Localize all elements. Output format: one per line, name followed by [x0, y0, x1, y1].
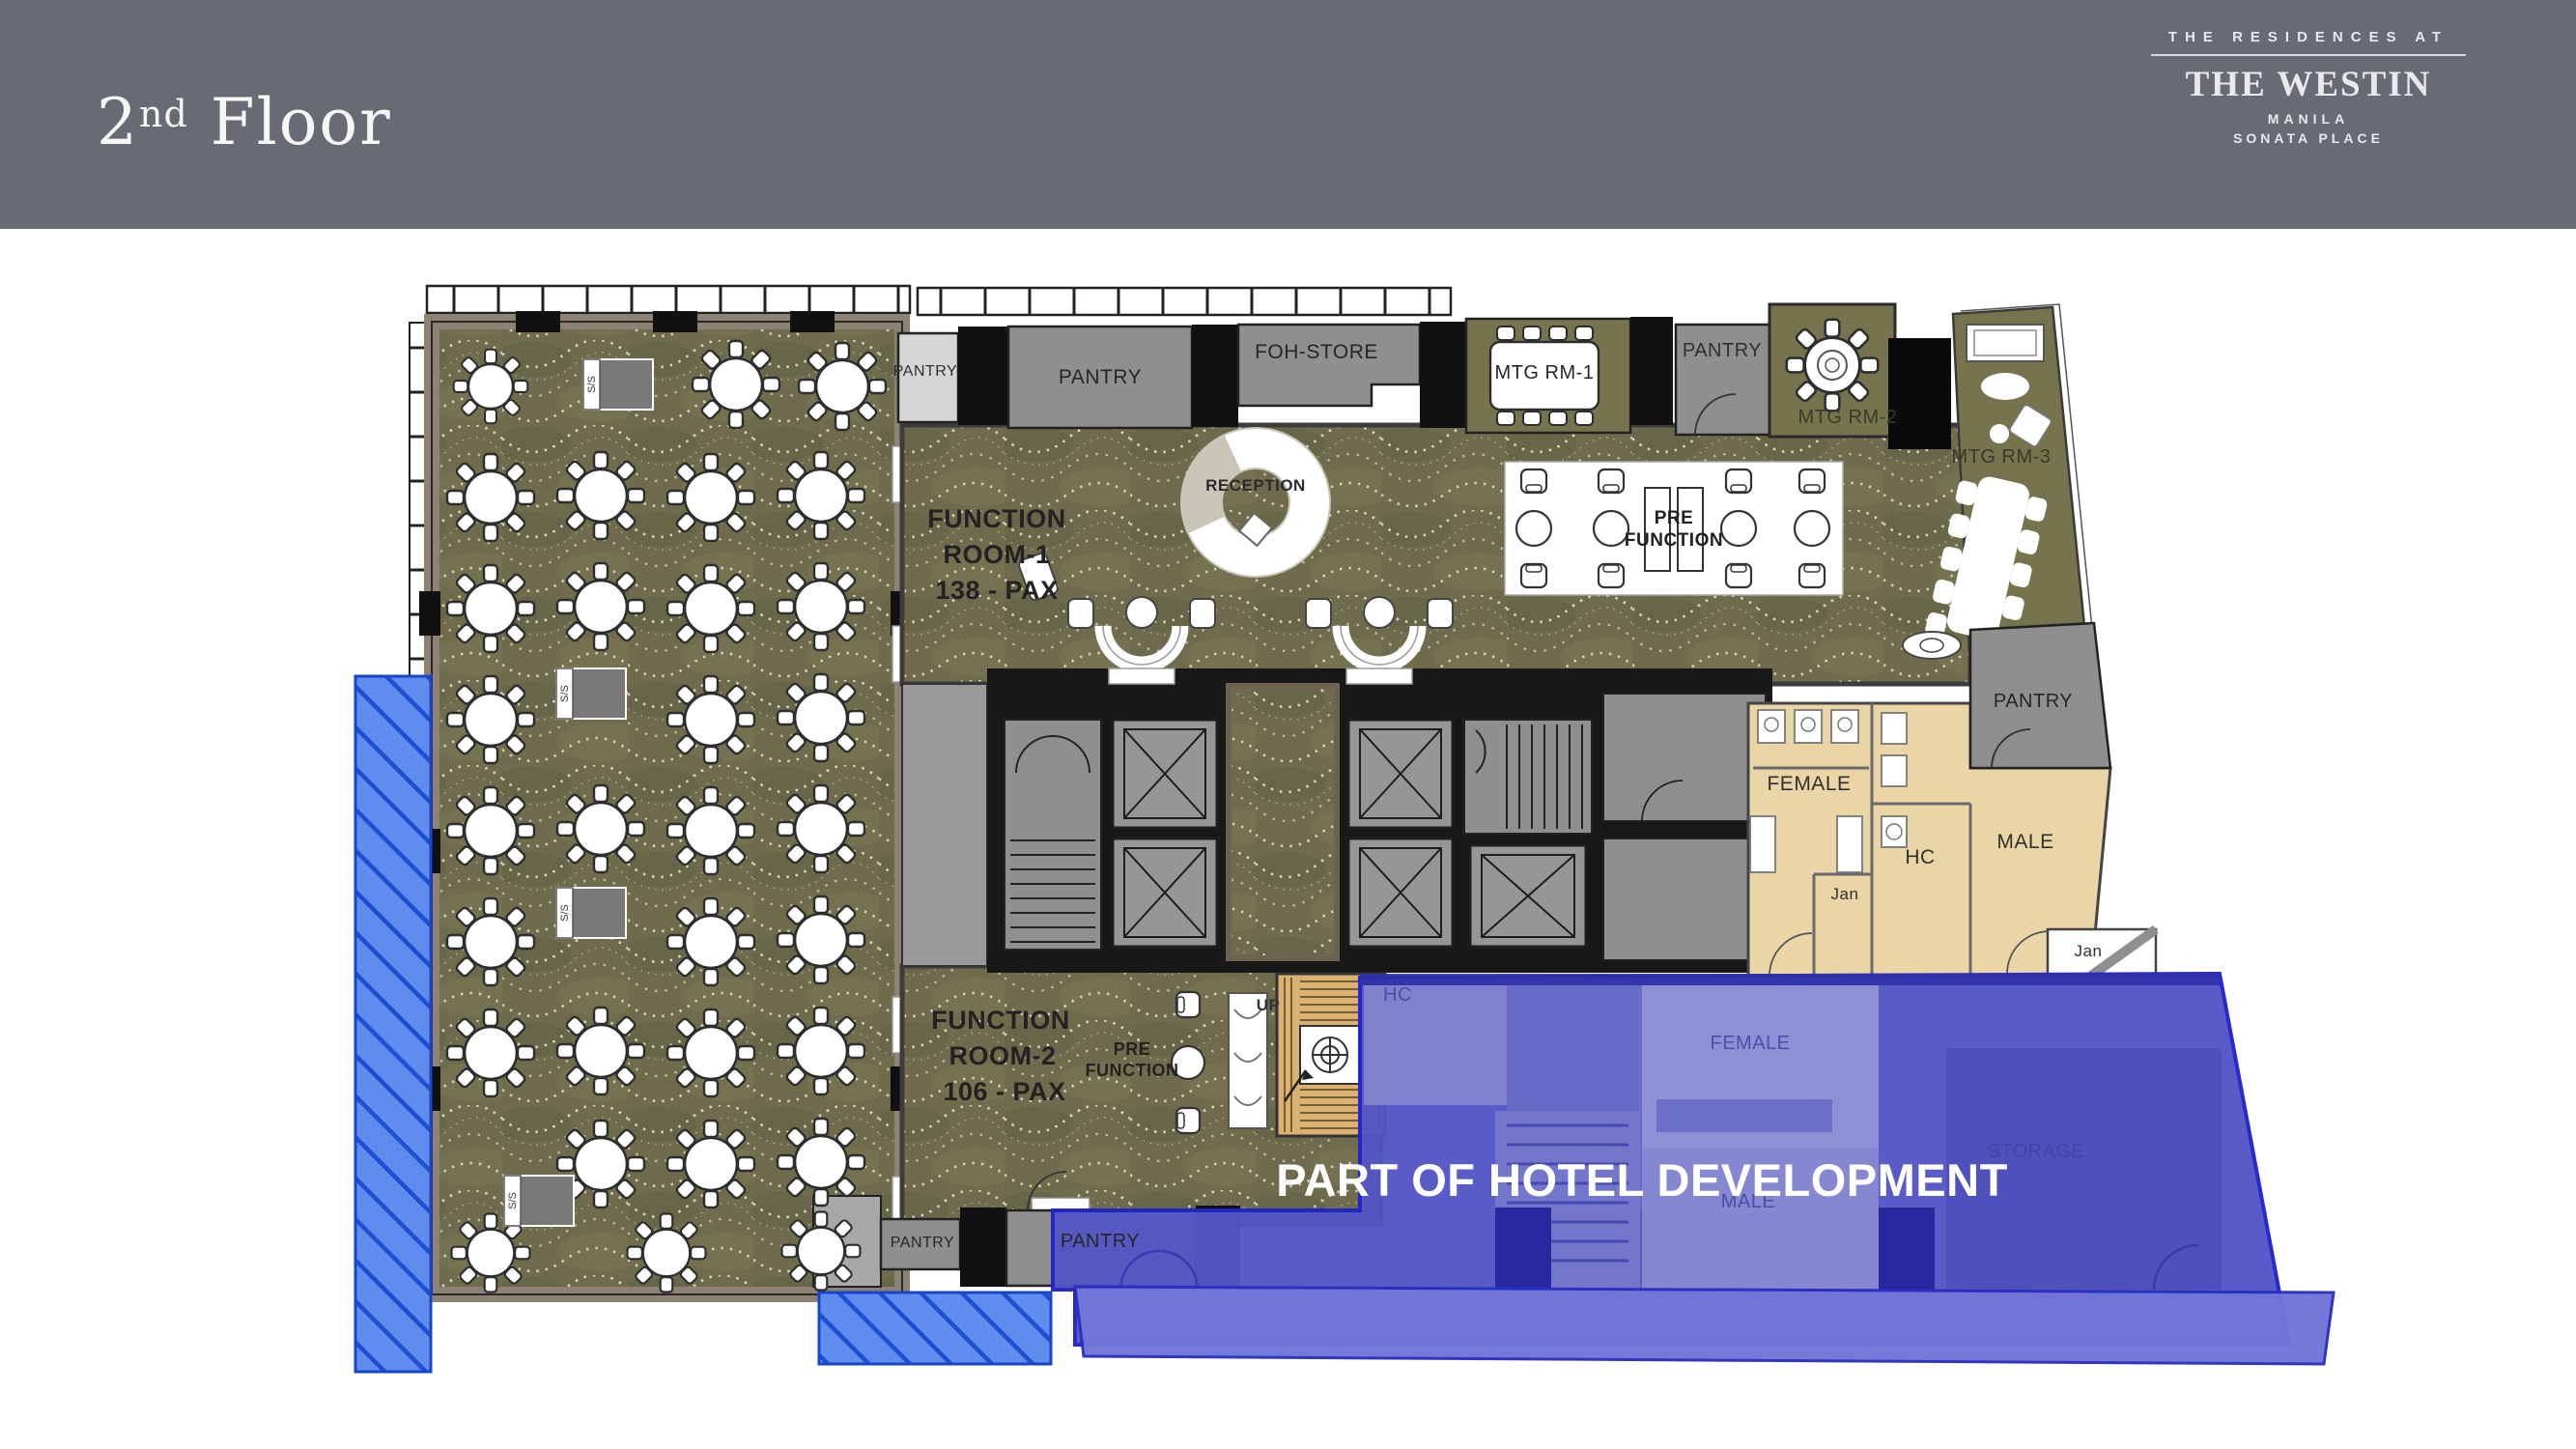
floor-word: Floor: [188, 85, 392, 159]
plan-label-pantry-top-small: PANTRY: [893, 363, 957, 380]
banquet-table: [667, 454, 754, 541]
elevator: [1113, 838, 1217, 947]
service-station-label: S/S: [586, 376, 598, 393]
plan-label-fr1-line3: 138 - PAX: [935, 576, 1058, 605]
banquet-table: [447, 787, 534, 874]
banquet-table: [454, 350, 528, 424]
banquet-table: [447, 676, 534, 763]
banquet-table: [782, 1212, 861, 1291]
slide: 2nd Floor THE RESIDENCES AT THE WESTIN M…: [0, 0, 2576, 1449]
banquet-table: [628, 1214, 706, 1293]
brand-place: SONATA PLACE: [2149, 130, 2468, 146]
plan-label-mtg-rm-1: MTG RM-1: [1495, 362, 1595, 384]
banquet-table: [778, 896, 864, 983]
plan-label-hc: HC: [1905, 846, 1935, 868]
plan-label-overlay-hc: HC: [1383, 984, 1412, 1006]
plan-label-male: MALE: [1996, 831, 2053, 853]
banquet-table: [447, 898, 534, 985]
service-station-label: S/S: [507, 1192, 519, 1209]
floor-number: 2: [97, 85, 139, 159]
banquet-table: [667, 1121, 754, 1207]
wall-block: [1888, 338, 1951, 449]
page-title: 2nd Floor: [97, 85, 392, 159]
plan-label-overlay-female: FEMALE: [1710, 1033, 1790, 1054]
brand-divider: [2151, 54, 2466, 56]
plan-label-jan-female: Jan: [1831, 885, 1859, 903]
plan-label-overlay-title: PART OF HOTEL DEVELOPMENT: [1276, 1154, 2008, 1206]
plan-label-pantry-bottom: PANTRY: [1061, 1231, 1140, 1252]
wall-block: [1630, 317, 1673, 425]
plan-label-foh-store: FOH-STORE: [1255, 341, 1378, 363]
wall-block: [1192, 325, 1238, 427]
plan-label-prefunction-top-2: FUNCTION: [1625, 530, 1723, 551]
plan-label-female: FEMALE: [1767, 773, 1851, 795]
plan-label-fr1-line2: ROOM-1: [944, 540, 1051, 569]
service-station-label: S/S: [559, 685, 571, 702]
banquet-table: [778, 1119, 864, 1206]
plan-label-mtg-rm-3: MTG RM-3: [1952, 446, 2052, 468]
service-station: S/S: [583, 359, 653, 410]
brand-logo: THE RESIDENCES AT THE WESTIN MANILA SONA…: [2149, 29, 2468, 146]
ottoman: [1981, 373, 2029, 400]
banquet-table: [447, 565, 534, 652]
plan-label-prefunction-top-1: PRE: [1655, 508, 1694, 528]
plan-label-pantry-top: PANTRY: [1059, 366, 1142, 388]
banquet-table: [778, 1008, 864, 1094]
banquet-table: [667, 565, 754, 652]
plan-label-reception: RECEPTION: [1205, 476, 1306, 495]
service-station: S/S: [556, 668, 626, 719]
wall-block: [1420, 322, 1466, 428]
banquet-table: [799, 343, 886, 430]
banquet-table: [778, 785, 864, 872]
plan-label-fr2-line1: FUNCTION: [931, 1006, 1069, 1035]
plan-label-pantry-top-right: PANTRY: [1683, 340, 1762, 361]
brand-tagline: THE RESIDENCES AT: [2149, 29, 2468, 45]
banquet-table: [667, 1009, 754, 1096]
plan-label-pantry-bottom-left: PANTRY: [891, 1235, 954, 1251]
elevator: [1348, 720, 1453, 828]
plan-label-fr1-line1: FUNCTION: [927, 504, 1065, 533]
prefunction-top: [1505, 462, 1843, 595]
plan-label-mtg-rm-2: MTG RM-2: [1798, 407, 1898, 428]
wall-block: [958, 327, 1008, 425]
banquet-table: [447, 1009, 534, 1096]
banquet-table: [557, 452, 644, 539]
building-core: [987, 668, 1772, 973]
banquet-table: [557, 1008, 644, 1094]
service-elevator: [1470, 845, 1586, 947]
service-station: S/S: [504, 1176, 574, 1226]
banquet-table: [667, 898, 754, 985]
ottoman-small: [1990, 424, 2009, 443]
brand-city: MANILA: [2149, 111, 2468, 127]
plan-label-up: UP: [1257, 996, 1281, 1014]
header-bar: 2nd Floor THE RESIDENCES AT THE WESTIN M…: [0, 0, 2576, 229]
elevator: [1113, 720, 1217, 828]
plan-label-fr2-line2: ROOM-2: [949, 1041, 1057, 1070]
banquet-table: [778, 563, 864, 650]
banquet-table: [778, 452, 864, 539]
service-corridor: [902, 684, 987, 966]
banquet-table: [667, 787, 754, 874]
banquet-table: [557, 785, 644, 872]
banquet-table: [667, 676, 754, 763]
floor-ordinal: nd: [139, 93, 188, 135]
plan-label-pantry-right: PANTRY: [1994, 691, 2073, 712]
plan-label-jan-right: Jan: [2075, 942, 2103, 960]
plan-label-fr2-line3: 106 - PAX: [943, 1077, 1065, 1106]
elevator: [1348, 838, 1453, 947]
foh-store-room: [1238, 325, 1420, 406]
plan-label-prefunction-bot-1: PRE: [1114, 1039, 1151, 1059]
banquet-table: [778, 674, 864, 761]
brand-name: THE WESTIN: [2149, 64, 2468, 105]
banquet-table: [557, 563, 644, 650]
service-station: S/S: [556, 888, 626, 938]
banquet-table: [693, 341, 779, 428]
banquet-table: [447, 454, 534, 541]
service-station-label: S/S: [559, 904, 571, 922]
plan-label-prefunction-bot-2: FUNCTION: [1086, 1061, 1179, 1080]
